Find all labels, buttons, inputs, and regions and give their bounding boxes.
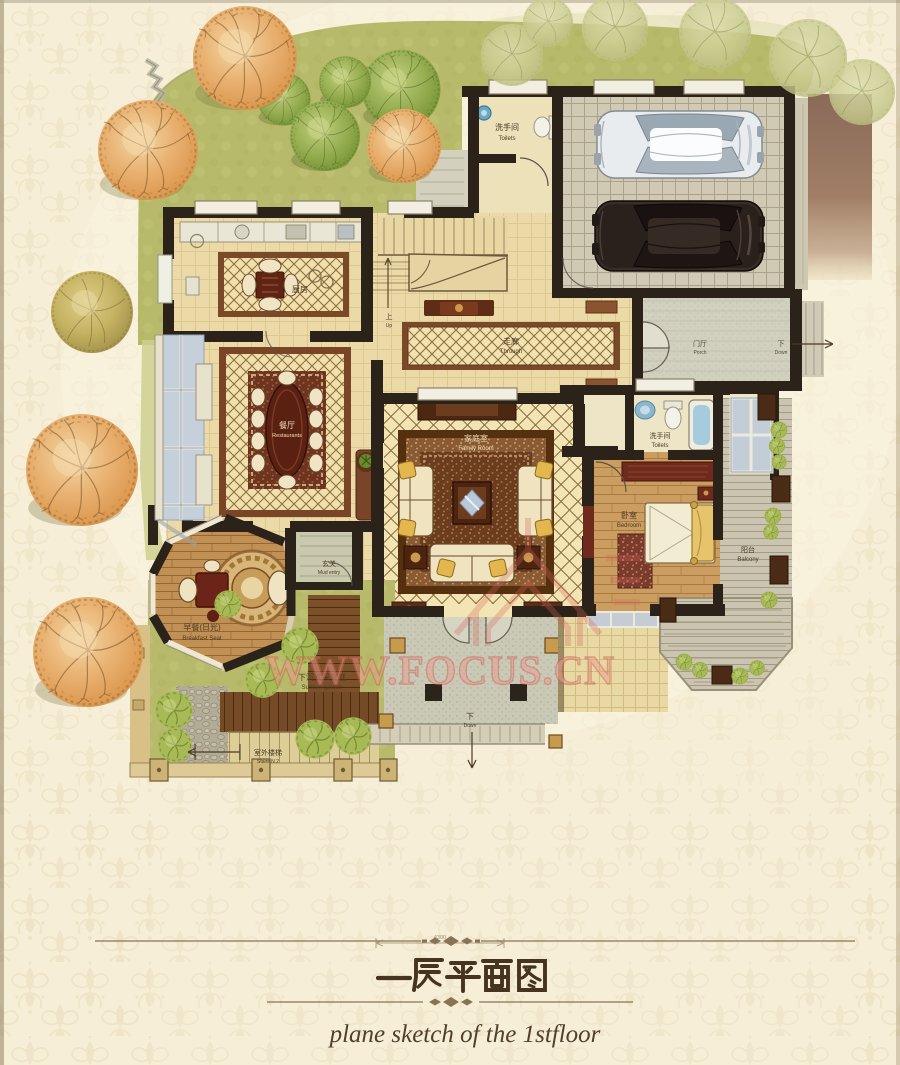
svg-text:Porch: Porch bbox=[693, 350, 706, 356]
svg-text:Down: Down bbox=[775, 350, 788, 356]
svg-text:门厅: 门厅 bbox=[693, 339, 707, 348]
svg-text:走廊: 走廊 bbox=[503, 336, 519, 346]
svg-text:plane sketch of the 1stfloor: plane sketch of the 1stfloor bbox=[328, 1021, 601, 1048]
svg-text:Down: Down bbox=[464, 723, 477, 729]
svg-text:Bedroom: Bedroom bbox=[617, 523, 641, 529]
svg-text:室外楼梯: 室外楼梯 bbox=[254, 748, 282, 757]
svg-text:Up: Up bbox=[386, 323, 393, 329]
svg-text:Restaurants: Restaurants bbox=[272, 433, 302, 439]
svg-text:Stairs N.2: Stairs N.2 bbox=[257, 759, 279, 765]
svg-text:早餐(日光): 早餐(日光) bbox=[183, 622, 221, 632]
svg-text:Toilets: Toilets bbox=[651, 443, 668, 449]
svg-text:卧室: 卧室 bbox=[621, 510, 637, 520]
svg-text:Toilets: Toilets bbox=[498, 136, 515, 142]
svg-text:餐厅: 餐厅 bbox=[279, 421, 295, 430]
svg-text:洗手间: 洗手间 bbox=[650, 431, 671, 440]
svg-text:Through: Through bbox=[500, 349, 522, 355]
svg-text:阳台: 阳台 bbox=[741, 545, 755, 554]
svg-text:WWW.FOCUS.CN: WWW.FOCUS.CN bbox=[265, 647, 615, 693]
svg-text:厨房: 厨房 bbox=[292, 284, 308, 294]
svg-text:Balcony: Balcony bbox=[737, 557, 758, 563]
svg-text:洗手间: 洗手间 bbox=[495, 122, 519, 132]
svg-text:玄关: 玄关 bbox=[322, 559, 336, 568]
svg-text:Family Room: Family Room bbox=[458, 446, 493, 452]
svg-text:家庭室: 家庭室 bbox=[464, 433, 488, 443]
svg-text:Mud entry: Mud entry bbox=[318, 570, 341, 576]
svg-text:下: 下 bbox=[466, 712, 474, 721]
svg-text:下: 下 bbox=[778, 340, 785, 348]
svg-text:上: 上 bbox=[386, 312, 393, 321]
svg-text:Breakfast Seat: Breakfast Seat bbox=[182, 636, 222, 642]
